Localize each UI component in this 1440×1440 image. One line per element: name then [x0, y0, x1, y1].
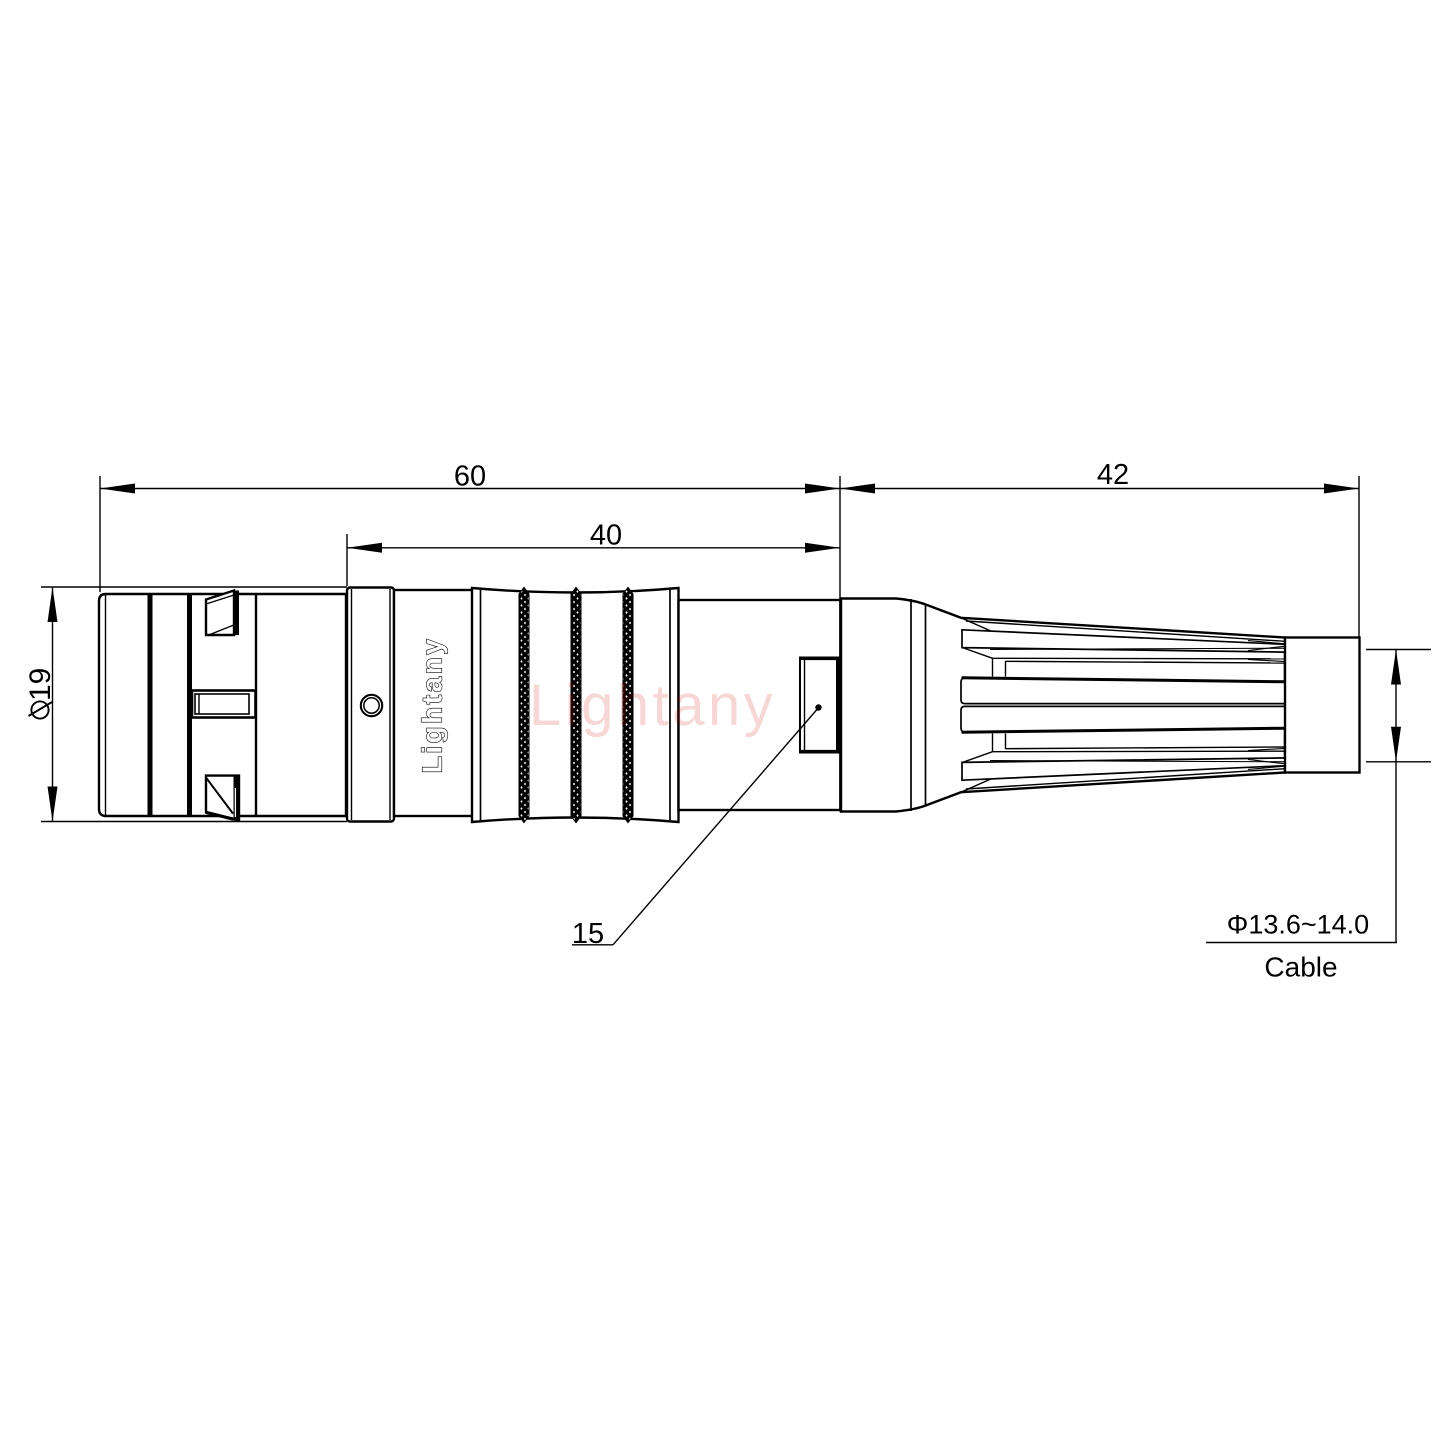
svg-text:60: 60: [454, 460, 486, 492]
svg-text:19: 19: [24, 668, 57, 701]
svg-text:Φ13.6~14.0: Φ13.6~14.0: [1227, 909, 1369, 939]
svg-text:40: 40: [590, 519, 622, 551]
svg-text:Cable: Cable: [1264, 952, 1337, 983]
svg-text:Lightany: Lightany: [417, 637, 448, 774]
svg-text:42: 42: [1097, 459, 1129, 491]
svg-text:15: 15: [572, 918, 604, 950]
svg-text:Lightany: Lightany: [529, 673, 776, 738]
